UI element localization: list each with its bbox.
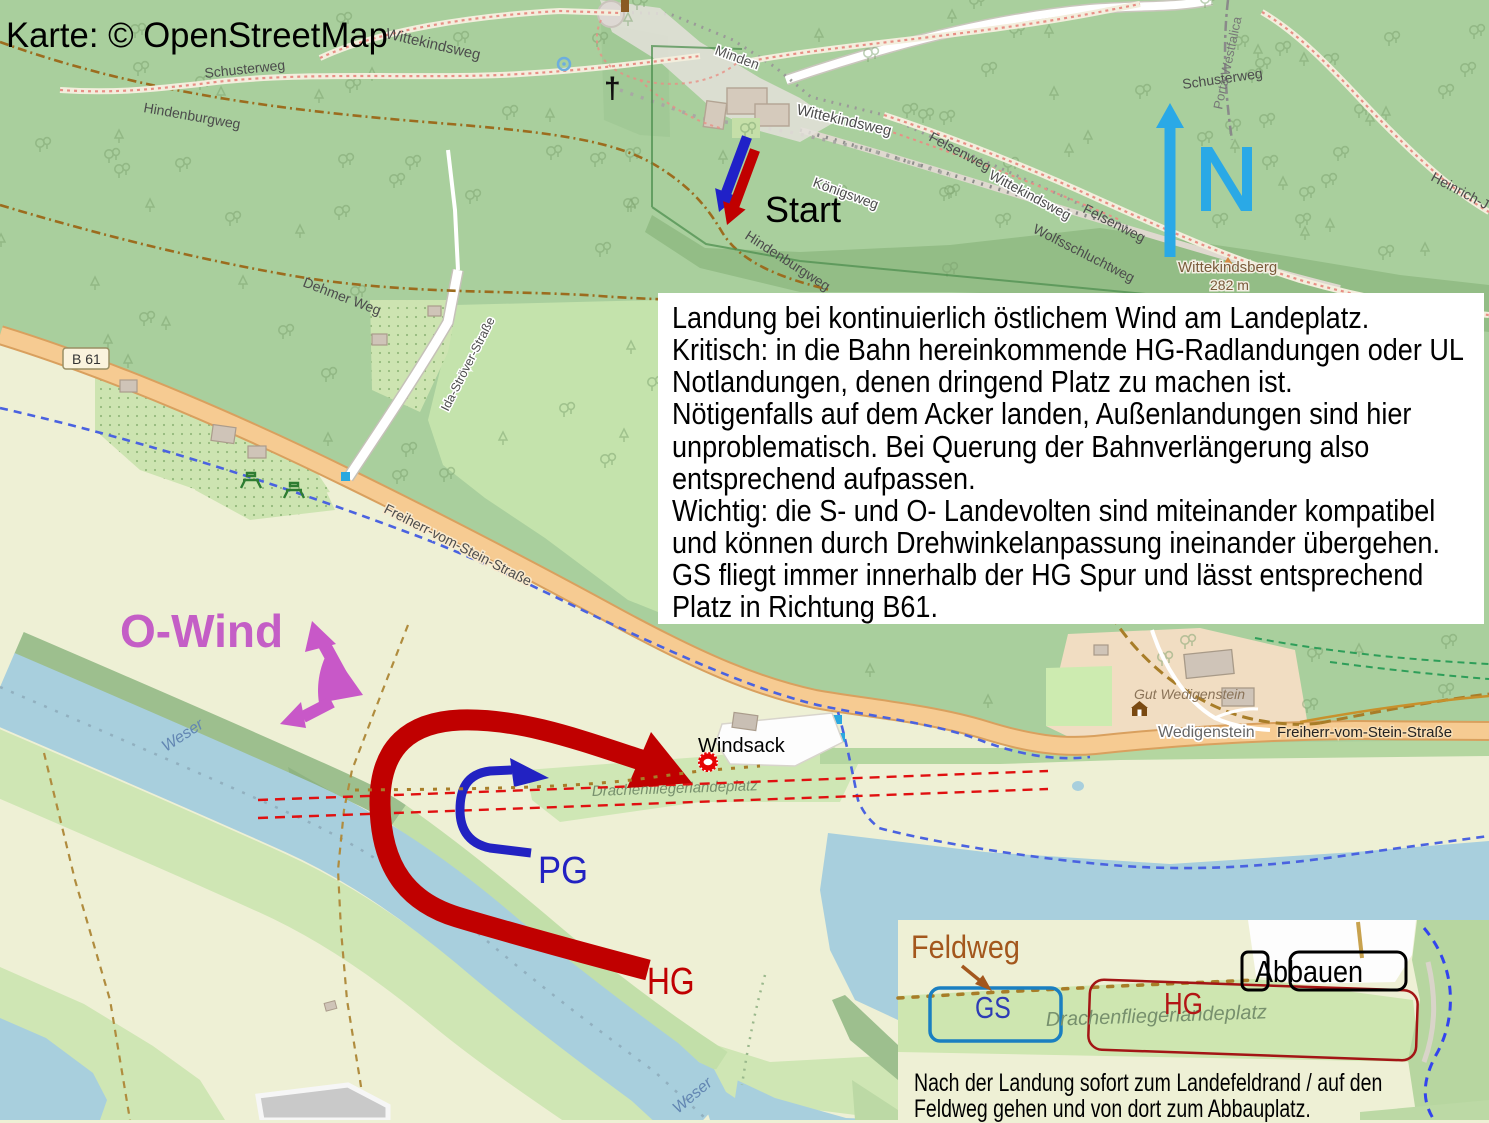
svg-text:Wedigenstein: Wedigenstein xyxy=(1158,724,1255,741)
svg-text:Gut Wedigenstein: Gut Wedigenstein xyxy=(1134,686,1245,702)
svg-text:B 61: B 61 xyxy=(72,351,101,367)
svg-text:282 m: 282 m xyxy=(1210,277,1249,293)
svg-text:Freiherr-vom-Stein-Straße: Freiherr-vom-Stein-Straße xyxy=(1277,724,1452,741)
svg-text:Wittekindsberg: Wittekindsberg xyxy=(1178,259,1277,276)
svg-text:†: † xyxy=(604,72,621,105)
